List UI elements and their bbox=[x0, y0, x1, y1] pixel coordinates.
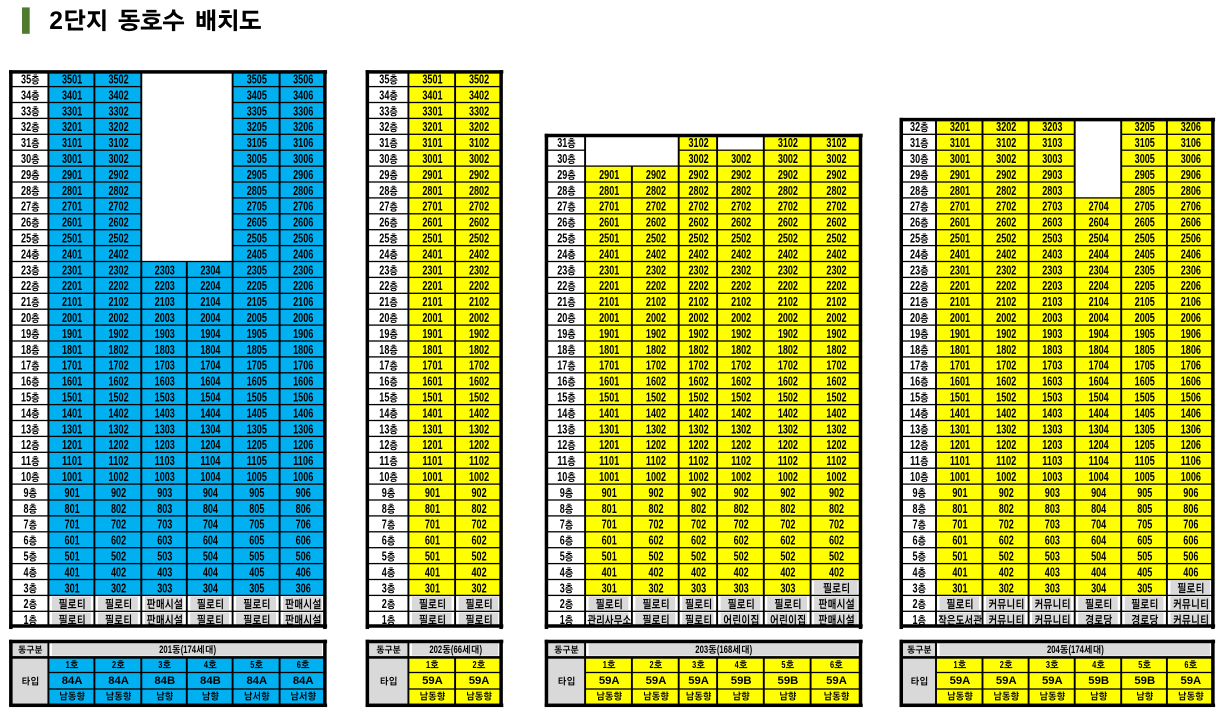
svg-text:22: 22 bbox=[557, 279, 567, 293]
svg-text:2202: 2202 bbox=[108, 279, 128, 293]
svg-text:1401: 1401 bbox=[950, 406, 970, 420]
svg-text:1802: 1802 bbox=[646, 343, 666, 357]
svg-text:1102: 1102 bbox=[469, 454, 489, 468]
svg-text:1604: 1604 bbox=[1089, 375, 1109, 389]
svg-text:3101: 3101 bbox=[62, 136, 82, 150]
svg-text:1502: 1502 bbox=[689, 391, 709, 405]
svg-text:59B: 59B bbox=[731, 675, 752, 687]
svg-text:706: 706 bbox=[296, 518, 311, 532]
svg-text:1201: 1201 bbox=[62, 438, 82, 452]
svg-text:901: 901 bbox=[602, 486, 617, 500]
svg-text:1703: 1703 bbox=[155, 359, 175, 373]
svg-text:1001: 1001 bbox=[62, 470, 82, 484]
svg-text:23: 23 bbox=[379, 263, 389, 277]
svg-text:3501: 3501 bbox=[62, 73, 82, 87]
svg-text:202: 202 bbox=[429, 644, 442, 656]
svg-text:1703: 1703 bbox=[1042, 359, 1062, 373]
svg-text:1102: 1102 bbox=[731, 454, 751, 468]
svg-text:2203: 2203 bbox=[155, 279, 175, 293]
svg-text:1904: 1904 bbox=[200, 327, 220, 341]
svg-text:6: 6 bbox=[560, 534, 565, 548]
svg-text:1202: 1202 bbox=[826, 438, 846, 452]
svg-text:803: 803 bbox=[157, 502, 172, 516]
svg-text:2802: 2802 bbox=[646, 184, 666, 198]
svg-text:301: 301 bbox=[952, 581, 967, 595]
svg-text:1603: 1603 bbox=[155, 375, 175, 389]
svg-text:2702: 2702 bbox=[996, 200, 1016, 214]
svg-text:3: 3 bbox=[382, 581, 387, 595]
svg-text:1102: 1102 bbox=[778, 454, 798, 468]
svg-text:704: 704 bbox=[1091, 518, 1106, 532]
svg-text:1606: 1606 bbox=[1181, 375, 1201, 389]
svg-text:2802: 2802 bbox=[108, 184, 128, 198]
svg-text:2902: 2902 bbox=[826, 168, 846, 182]
svg-text:): ) bbox=[479, 644, 482, 656]
svg-text:304: 304 bbox=[203, 581, 218, 595]
svg-text:2905: 2905 bbox=[1135, 168, 1155, 182]
svg-text:1501: 1501 bbox=[422, 391, 442, 405]
svg-text:1405: 1405 bbox=[1135, 406, 1155, 420]
svg-text:2601: 2601 bbox=[950, 216, 970, 230]
svg-text:2102: 2102 bbox=[826, 295, 846, 309]
svg-text:303: 303 bbox=[780, 581, 795, 595]
svg-text:2905: 2905 bbox=[247, 168, 267, 182]
svg-text:1902: 1902 bbox=[108, 327, 128, 341]
svg-text:606: 606 bbox=[296, 534, 311, 548]
svg-text:2002: 2002 bbox=[731, 311, 751, 325]
svg-text:1406: 1406 bbox=[293, 406, 313, 420]
svg-text:1101: 1101 bbox=[599, 454, 619, 468]
svg-text:2605: 2605 bbox=[247, 216, 267, 230]
svg-text:406: 406 bbox=[296, 565, 311, 579]
svg-text:2002: 2002 bbox=[469, 311, 489, 325]
svg-text:1001: 1001 bbox=[950, 470, 970, 484]
svg-text:1801: 1801 bbox=[422, 343, 442, 357]
svg-text:2803: 2803 bbox=[1042, 184, 1062, 198]
svg-text:6: 6 bbox=[24, 534, 29, 548]
svg-text:1903: 1903 bbox=[1042, 327, 1062, 341]
svg-text:2703: 2703 bbox=[1042, 200, 1062, 214]
svg-text:2002: 2002 bbox=[689, 311, 709, 325]
svg-text:502: 502 bbox=[829, 550, 844, 564]
svg-text:905: 905 bbox=[249, 486, 264, 500]
svg-text:5: 5 bbox=[1138, 660, 1142, 671]
svg-text:2401: 2401 bbox=[422, 247, 442, 261]
svg-text:59A: 59A bbox=[826, 675, 847, 687]
svg-text:502: 502 bbox=[471, 550, 486, 564]
svg-text:905: 905 bbox=[1137, 486, 1152, 500]
svg-text:2901: 2901 bbox=[422, 168, 442, 182]
svg-text:2906: 2906 bbox=[1181, 168, 1201, 182]
svg-text:(66: (66 bbox=[451, 644, 462, 656]
svg-text:2902: 2902 bbox=[646, 168, 666, 182]
svg-text:1502: 1502 bbox=[646, 391, 666, 405]
svg-text:1402: 1402 bbox=[689, 406, 709, 420]
svg-text:1602: 1602 bbox=[826, 375, 846, 389]
svg-text:2702: 2702 bbox=[646, 200, 666, 214]
svg-text:1401: 1401 bbox=[599, 406, 619, 420]
svg-text:801: 801 bbox=[952, 502, 967, 516]
svg-text:903: 903 bbox=[1045, 486, 1060, 500]
svg-text:1705: 1705 bbox=[1135, 359, 1155, 373]
svg-text:703: 703 bbox=[1045, 518, 1060, 532]
svg-text:18: 18 bbox=[21, 343, 31, 357]
svg-text:1301: 1301 bbox=[422, 422, 442, 436]
svg-text:1402: 1402 bbox=[778, 406, 798, 420]
svg-text:1506: 1506 bbox=[293, 391, 313, 405]
svg-text:3002: 3002 bbox=[731, 152, 751, 166]
svg-text:1704: 1704 bbox=[200, 359, 220, 373]
svg-text:3205: 3205 bbox=[1135, 120, 1155, 134]
svg-text:(174: (174 bbox=[181, 644, 196, 656]
svg-text:702: 702 bbox=[734, 518, 749, 532]
svg-text:1701: 1701 bbox=[599, 359, 619, 373]
svg-text:802: 802 bbox=[780, 502, 795, 516]
svg-text:2005: 2005 bbox=[1135, 311, 1155, 325]
svg-text:3502: 3502 bbox=[469, 73, 489, 87]
svg-text:25: 25 bbox=[379, 232, 389, 246]
svg-text:1503: 1503 bbox=[1042, 391, 1062, 405]
svg-text:19: 19 bbox=[557, 327, 567, 341]
svg-text:19: 19 bbox=[910, 327, 920, 341]
svg-text:1502: 1502 bbox=[108, 391, 128, 405]
svg-text:5: 5 bbox=[24, 550, 29, 564]
svg-text:3003: 3003 bbox=[1042, 152, 1062, 166]
svg-text:15: 15 bbox=[910, 391, 920, 405]
svg-text:401: 401 bbox=[65, 565, 80, 579]
svg-text:29: 29 bbox=[557, 168, 567, 182]
svg-text:3305: 3305 bbox=[247, 104, 267, 118]
svg-text:1302: 1302 bbox=[108, 422, 128, 436]
svg-text:4: 4 bbox=[560, 565, 565, 579]
svg-text:1: 1 bbox=[382, 613, 387, 627]
svg-text:3402: 3402 bbox=[108, 88, 128, 102]
svg-text:1401: 1401 bbox=[422, 406, 442, 420]
svg-text:2501: 2501 bbox=[950, 232, 970, 246]
svg-text:1302: 1302 bbox=[469, 422, 489, 436]
svg-text:5: 5 bbox=[781, 660, 785, 671]
svg-text:3402: 3402 bbox=[469, 88, 489, 102]
svg-text:2705: 2705 bbox=[247, 200, 267, 214]
svg-text:2605: 2605 bbox=[1135, 216, 1155, 230]
svg-text:22: 22 bbox=[379, 279, 389, 293]
svg-text:23: 23 bbox=[557, 263, 567, 277]
svg-text:3202: 3202 bbox=[108, 120, 128, 134]
svg-text:4: 4 bbox=[735, 660, 739, 671]
svg-text:1105: 1105 bbox=[1135, 454, 1155, 468]
svg-text:1706: 1706 bbox=[1181, 359, 1201, 373]
svg-text:2101: 2101 bbox=[422, 295, 442, 309]
svg-text:1602: 1602 bbox=[469, 375, 489, 389]
svg-text:2402: 2402 bbox=[778, 247, 798, 261]
svg-text:406: 406 bbox=[1183, 565, 1198, 579]
svg-text:1802: 1802 bbox=[731, 343, 751, 357]
svg-text:702: 702 bbox=[829, 518, 844, 532]
svg-text:501: 501 bbox=[425, 550, 440, 564]
svg-text:17: 17 bbox=[910, 359, 920, 373]
svg-text:3102: 3102 bbox=[469, 136, 489, 150]
svg-text:1901: 1901 bbox=[599, 327, 619, 341]
svg-text:805: 805 bbox=[249, 502, 264, 516]
svg-text:2802: 2802 bbox=[689, 184, 709, 198]
svg-text:1902: 1902 bbox=[778, 327, 798, 341]
svg-text:3002: 3002 bbox=[778, 152, 798, 166]
svg-text:2602: 2602 bbox=[646, 216, 666, 230]
svg-text:2706: 2706 bbox=[1181, 200, 1201, 214]
svg-text:1206: 1206 bbox=[293, 438, 313, 452]
svg-text:1502: 1502 bbox=[996, 391, 1016, 405]
svg-text:1402: 1402 bbox=[469, 406, 489, 420]
svg-text:1701: 1701 bbox=[62, 359, 82, 373]
svg-text:2801: 2801 bbox=[950, 184, 970, 198]
svg-text:3002: 3002 bbox=[689, 152, 709, 166]
svg-text:801: 801 bbox=[602, 502, 617, 516]
svg-text:9: 9 bbox=[913, 486, 918, 500]
svg-text:30: 30 bbox=[557, 152, 567, 166]
svg-text:2205: 2205 bbox=[1135, 279, 1155, 293]
svg-text:1603: 1603 bbox=[1042, 375, 1062, 389]
svg-text:904: 904 bbox=[1091, 486, 1106, 500]
svg-text:2204: 2204 bbox=[1089, 279, 1109, 293]
svg-text:3: 3 bbox=[913, 581, 918, 595]
svg-text:904: 904 bbox=[203, 486, 218, 500]
svg-text:1002: 1002 bbox=[826, 470, 846, 484]
svg-text:1805: 1805 bbox=[247, 343, 267, 357]
svg-text:1002: 1002 bbox=[108, 470, 128, 484]
svg-text:902: 902 bbox=[829, 486, 844, 500]
svg-text:10: 10 bbox=[21, 470, 31, 484]
svg-text:2402: 2402 bbox=[826, 247, 846, 261]
svg-text:20: 20 bbox=[557, 311, 567, 325]
svg-text:16: 16 bbox=[910, 375, 920, 389]
svg-text:1802: 1802 bbox=[996, 343, 1016, 357]
svg-text:1: 1 bbox=[913, 613, 918, 627]
svg-text:2106: 2106 bbox=[293, 295, 313, 309]
svg-text:21: 21 bbox=[910, 295, 920, 309]
svg-text:1702: 1702 bbox=[778, 359, 798, 373]
svg-text:5: 5 bbox=[560, 550, 565, 564]
svg-text:602: 602 bbox=[471, 534, 486, 548]
svg-text:1401: 1401 bbox=[62, 406, 82, 420]
svg-text:1901: 1901 bbox=[62, 327, 82, 341]
svg-text:2102: 2102 bbox=[778, 295, 798, 309]
svg-text:1806: 1806 bbox=[1181, 343, 1201, 357]
svg-text:8: 8 bbox=[24, 502, 29, 516]
svg-text:6: 6 bbox=[297, 660, 301, 671]
svg-text:201: 201 bbox=[159, 644, 172, 656]
svg-text:2702: 2702 bbox=[689, 200, 709, 214]
svg-text:18: 18 bbox=[910, 343, 920, 357]
svg-text:403: 403 bbox=[157, 565, 172, 579]
svg-text:1505: 1505 bbox=[247, 391, 267, 405]
svg-text:2503: 2503 bbox=[1042, 232, 1062, 246]
svg-text:33: 33 bbox=[379, 104, 389, 118]
svg-text:402: 402 bbox=[648, 565, 663, 579]
svg-text:701: 701 bbox=[952, 518, 967, 532]
svg-text:603: 603 bbox=[157, 534, 172, 548]
svg-text:15: 15 bbox=[557, 391, 567, 405]
svg-text:26: 26 bbox=[557, 216, 567, 230]
svg-text:1202: 1202 bbox=[108, 438, 128, 452]
svg-text:401: 401 bbox=[602, 565, 617, 579]
svg-text:501: 501 bbox=[602, 550, 617, 564]
svg-text:2: 2 bbox=[560, 597, 565, 611]
svg-text:59A: 59A bbox=[469, 675, 490, 687]
svg-text:2601: 2601 bbox=[422, 216, 442, 230]
svg-text:602: 602 bbox=[691, 534, 706, 548]
svg-text:902: 902 bbox=[471, 486, 486, 500]
svg-text:2502: 2502 bbox=[689, 232, 709, 246]
svg-text:1502: 1502 bbox=[469, 391, 489, 405]
svg-text:2702: 2702 bbox=[778, 200, 798, 214]
svg-text:2606: 2606 bbox=[293, 216, 313, 230]
svg-text:2506: 2506 bbox=[1181, 232, 1201, 246]
svg-text:1404: 1404 bbox=[1089, 406, 1109, 420]
svg-text:902: 902 bbox=[734, 486, 749, 500]
svg-text:1202: 1202 bbox=[731, 438, 751, 452]
svg-text:1102: 1102 bbox=[689, 454, 709, 468]
svg-text:32: 32 bbox=[379, 120, 389, 134]
svg-text:1701: 1701 bbox=[422, 359, 442, 373]
svg-text:702: 702 bbox=[471, 518, 486, 532]
svg-text:2105: 2105 bbox=[247, 295, 267, 309]
svg-text:3201: 3201 bbox=[422, 120, 442, 134]
svg-text:3105: 3105 bbox=[247, 136, 267, 150]
svg-text:1402: 1402 bbox=[996, 406, 1016, 420]
svg-text:2201: 2201 bbox=[422, 279, 442, 293]
svg-text:802: 802 bbox=[734, 502, 749, 516]
svg-text:16: 16 bbox=[557, 375, 567, 389]
svg-text:604: 604 bbox=[1091, 534, 1106, 548]
svg-text:2301: 2301 bbox=[422, 263, 442, 277]
svg-text:2: 2 bbox=[650, 660, 654, 671]
svg-text:2: 2 bbox=[473, 660, 477, 671]
svg-text:30: 30 bbox=[910, 152, 920, 166]
svg-text:1002: 1002 bbox=[731, 470, 751, 484]
svg-text:2502: 2502 bbox=[778, 232, 798, 246]
svg-text:2801: 2801 bbox=[62, 184, 82, 198]
svg-text:2002: 2002 bbox=[108, 311, 128, 325]
svg-text:4: 4 bbox=[204, 660, 208, 671]
svg-text:84B: 84B bbox=[154, 675, 175, 687]
svg-text:84A: 84A bbox=[293, 675, 314, 687]
svg-text:1702: 1702 bbox=[108, 359, 128, 373]
svg-text:59B: 59B bbox=[1134, 675, 1155, 687]
svg-text:1302: 1302 bbox=[996, 422, 1016, 436]
svg-text:84A: 84A bbox=[108, 675, 129, 687]
svg-text:804: 804 bbox=[1091, 502, 1106, 516]
svg-text:3102: 3102 bbox=[778, 136, 798, 150]
svg-text:301: 301 bbox=[425, 581, 440, 595]
svg-text:703: 703 bbox=[157, 518, 172, 532]
svg-text:3501: 3501 bbox=[422, 73, 442, 87]
svg-text:2604: 2604 bbox=[1089, 216, 1109, 230]
svg-text:702: 702 bbox=[780, 518, 795, 532]
svg-text:1902: 1902 bbox=[469, 327, 489, 341]
svg-text:1202: 1202 bbox=[689, 438, 709, 452]
svg-text:26: 26 bbox=[379, 216, 389, 230]
svg-text:2504: 2504 bbox=[1089, 232, 1109, 246]
svg-text:505: 505 bbox=[1137, 550, 1152, 564]
svg-text:1804: 1804 bbox=[1089, 343, 1109, 357]
svg-text:1002: 1002 bbox=[996, 470, 1016, 484]
svg-text:2701: 2701 bbox=[599, 200, 619, 214]
svg-text:2302: 2302 bbox=[108, 263, 128, 277]
svg-text:1203: 1203 bbox=[1042, 438, 1062, 452]
svg-text:402: 402 bbox=[780, 565, 795, 579]
svg-text:1201: 1201 bbox=[599, 438, 619, 452]
svg-text:3206: 3206 bbox=[293, 120, 313, 134]
svg-text:1601: 1601 bbox=[422, 375, 442, 389]
svg-text:(168: (168 bbox=[717, 644, 732, 656]
svg-text:4: 4 bbox=[913, 565, 918, 579]
svg-text:1801: 1801 bbox=[599, 343, 619, 357]
svg-text:3002: 3002 bbox=[996, 152, 1016, 166]
svg-text:23: 23 bbox=[21, 263, 31, 277]
svg-text:2204: 2204 bbox=[200, 279, 220, 293]
svg-text:2202: 2202 bbox=[689, 279, 709, 293]
svg-text:1805: 1805 bbox=[1135, 343, 1155, 357]
svg-text:1004: 1004 bbox=[1089, 470, 1109, 484]
svg-text:502: 502 bbox=[999, 550, 1014, 564]
svg-text:2001: 2001 bbox=[950, 311, 970, 325]
svg-text:1304: 1304 bbox=[1089, 422, 1109, 436]
svg-text:3101: 3101 bbox=[422, 136, 442, 150]
svg-text:1006: 1006 bbox=[1181, 470, 1201, 484]
svg-text:1501: 1501 bbox=[62, 391, 82, 405]
svg-text:1802: 1802 bbox=[778, 343, 798, 357]
svg-text:1204: 1204 bbox=[200, 438, 220, 452]
svg-text:1505: 1505 bbox=[1135, 391, 1155, 405]
svg-text:27: 27 bbox=[557, 200, 567, 214]
svg-text:203: 203 bbox=[695, 644, 708, 656]
svg-text:2801: 2801 bbox=[599, 184, 619, 198]
svg-text:2101: 2101 bbox=[62, 295, 82, 309]
svg-text:2102: 2102 bbox=[469, 295, 489, 309]
svg-text:6: 6 bbox=[830, 660, 834, 671]
svg-text:59A: 59A bbox=[1042, 675, 1063, 687]
svg-text:901: 901 bbox=[65, 486, 80, 500]
svg-text:2902: 2902 bbox=[108, 168, 128, 182]
svg-text:28: 28 bbox=[557, 184, 567, 198]
svg-text:906: 906 bbox=[296, 486, 311, 500]
svg-text:1201: 1201 bbox=[950, 438, 970, 452]
svg-text:2402: 2402 bbox=[108, 247, 128, 261]
svg-text:24: 24 bbox=[557, 247, 567, 261]
svg-text:16: 16 bbox=[21, 375, 31, 389]
svg-text:1104: 1104 bbox=[1089, 454, 1109, 468]
svg-text:1702: 1702 bbox=[689, 359, 709, 373]
svg-text:301: 301 bbox=[602, 581, 617, 595]
svg-text:204: 204 bbox=[1047, 644, 1060, 656]
svg-text:801: 801 bbox=[425, 502, 440, 516]
svg-text:3201: 3201 bbox=[950, 120, 970, 134]
svg-text:705: 705 bbox=[249, 518, 264, 532]
svg-text:502: 502 bbox=[691, 550, 706, 564]
svg-text:401: 401 bbox=[425, 565, 440, 579]
svg-text:3: 3 bbox=[560, 581, 565, 595]
svg-text:2201: 2201 bbox=[62, 279, 82, 293]
svg-text:1: 1 bbox=[24, 613, 29, 627]
svg-text:1902: 1902 bbox=[731, 327, 751, 341]
svg-text:1306: 1306 bbox=[293, 422, 313, 436]
svg-text:1106: 1106 bbox=[293, 454, 313, 468]
svg-text:902: 902 bbox=[648, 486, 663, 500]
svg-text:3001: 3001 bbox=[62, 152, 82, 166]
svg-text:2701: 2701 bbox=[950, 200, 970, 214]
svg-text:1803: 1803 bbox=[1042, 343, 1062, 357]
svg-text:402: 402 bbox=[734, 565, 749, 579]
